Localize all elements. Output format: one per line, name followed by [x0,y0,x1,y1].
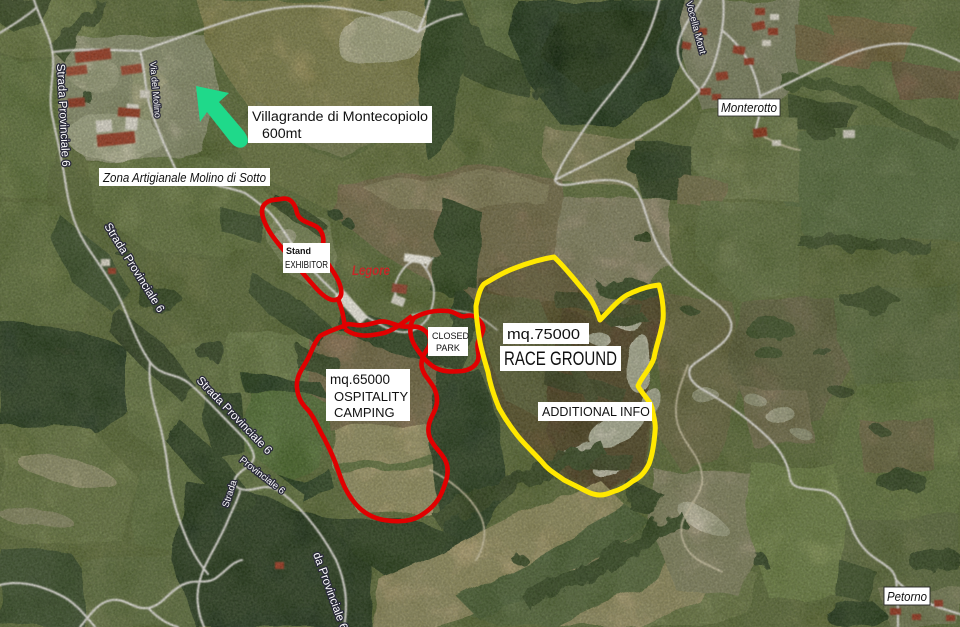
svg-text:Monterotto: Monterotto [721,101,777,115]
svg-text:Legore: Legore [352,262,390,278]
svg-text:PARK: PARK [436,343,460,353]
svg-text:mq.65000: mq.65000 [330,372,390,387]
svg-text:ADDITIONAL INFO: ADDITIONAL INFO [542,405,650,419]
svg-text:Stand: Stand [286,246,311,256]
svg-text:OSPITALITY: OSPITALITY [334,389,408,404]
svg-text:EXHIBITOR: EXHIBITOR [285,259,328,271]
svg-text:Petorno: Petorno [887,590,927,604]
svg-text:Zona Artigianale Molino di Sot: Zona Artigianale Molino di Sotto [102,171,266,185]
svg-text:CAMPING: CAMPING [334,405,395,420]
svg-text:600mt: 600mt [262,126,301,142]
svg-text:RACE GROUND: RACE GROUND [504,348,617,370]
svg-text:mq.75000: mq.75000 [507,327,580,343]
svg-text:CLOSED: CLOSED [432,331,470,341]
svg-text:Villagrande di Montecopiolo: Villagrande di Montecopiolo [252,109,428,125]
